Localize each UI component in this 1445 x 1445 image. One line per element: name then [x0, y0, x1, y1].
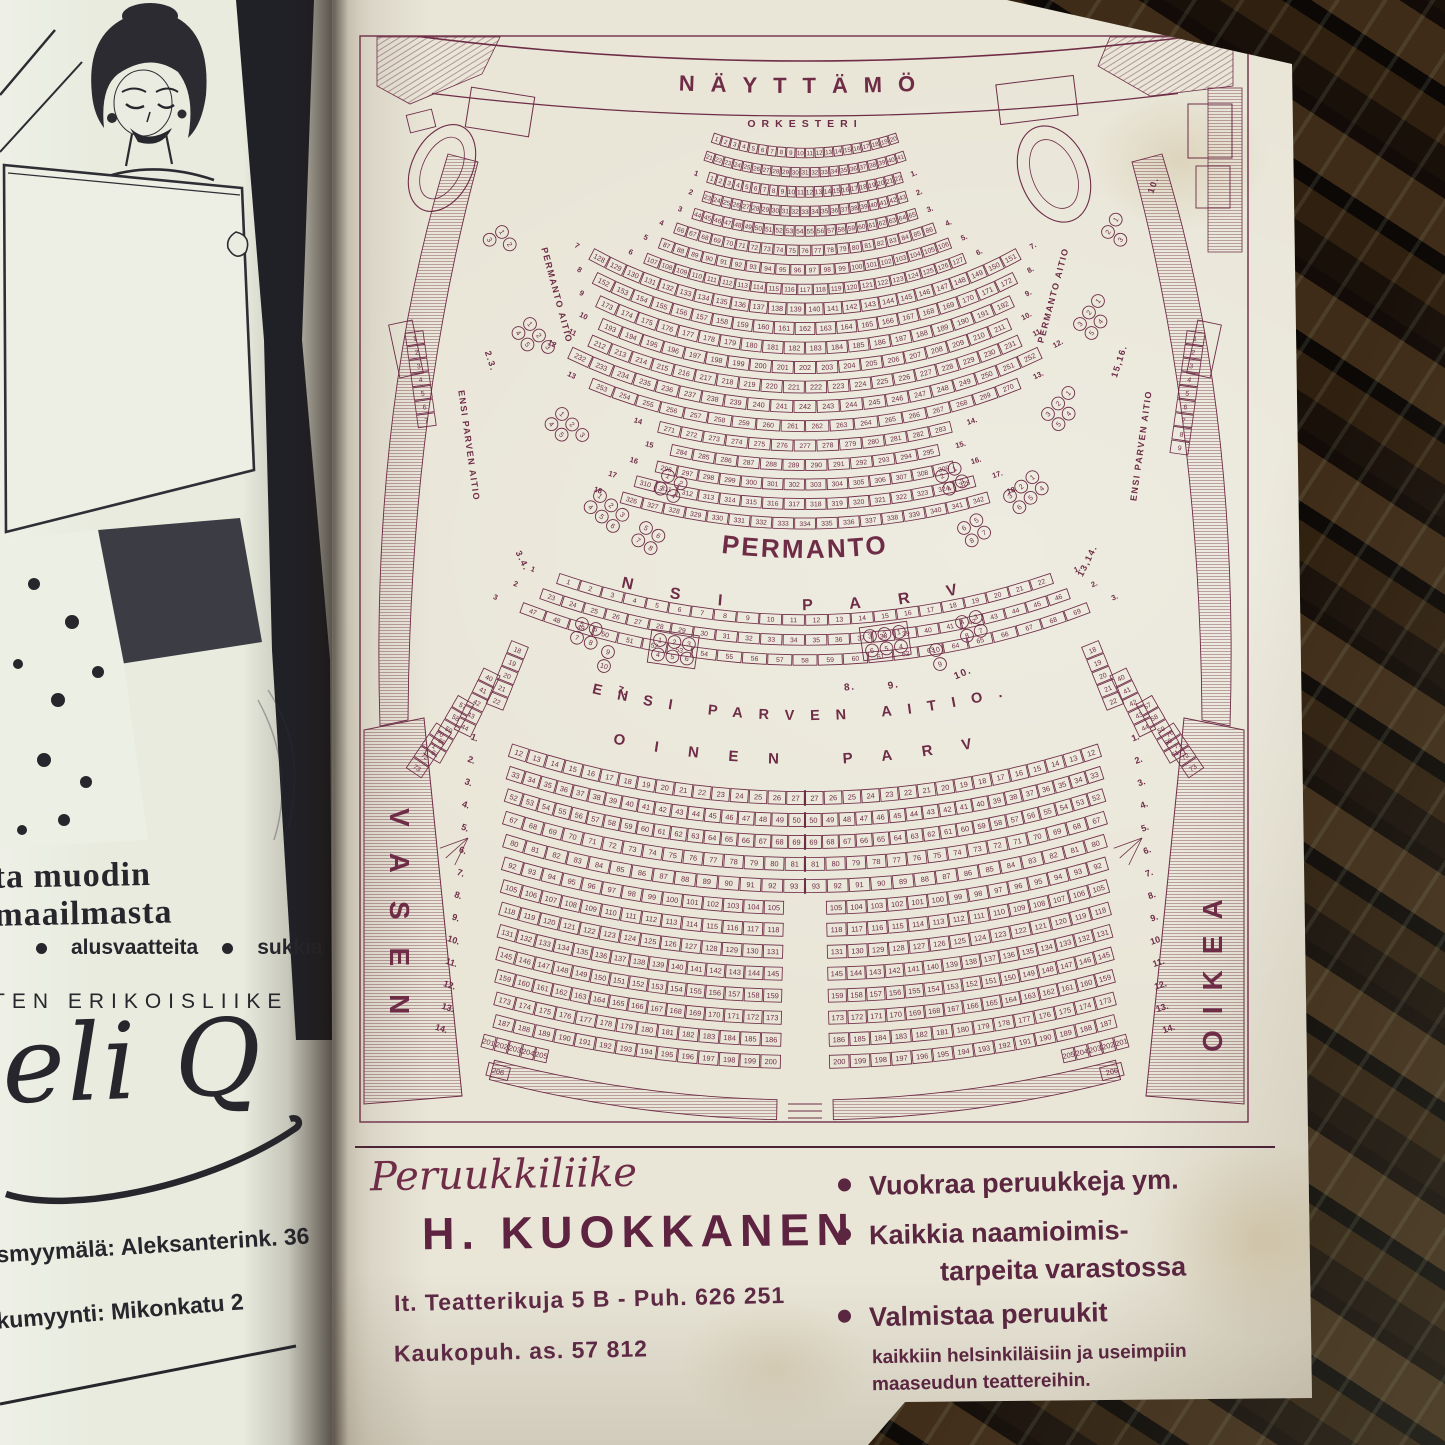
svg-text:19: 19 [971, 597, 980, 606]
svg-text:120: 120 [1054, 916, 1068, 928]
svg-text:119: 119 [831, 285, 842, 293]
svg-text:26: 26 [773, 793, 781, 802]
svg-text:2: 2 [587, 586, 593, 594]
svg-text:8: 8 [1179, 431, 1184, 438]
svg-text:112: 112 [645, 914, 658, 925]
svg-text:7: 7 [634, 537, 641, 545]
svg-text:15: 15 [1032, 763, 1042, 774]
svg-text:273: 273 [708, 435, 721, 444]
svg-text:84: 84 [901, 234, 910, 243]
svg-text:1.: 1. [909, 168, 918, 179]
svg-text:196: 196 [681, 1051, 694, 1061]
svg-text:3: 3 [732, 141, 738, 149]
svg-text:65: 65 [877, 834, 886, 844]
svg-text:68: 68 [826, 837, 834, 846]
svg-text:113: 113 [932, 917, 945, 927]
svg-text:30: 30 [700, 630, 709, 638]
svg-text:5.: 5. [460, 822, 470, 834]
bullet-item: sukkia [257, 936, 322, 960]
svg-text:39: 39 [992, 795, 1002, 805]
svg-text:1: 1 [1029, 474, 1037, 482]
svg-text:4: 4 [1039, 485, 1047, 493]
svg-text:185: 185 [744, 1034, 757, 1044]
svg-text:189: 189 [537, 1028, 551, 1039]
svg-text:2: 2 [718, 178, 724, 186]
svg-text:10: 10 [578, 310, 589, 322]
svg-text:12: 12 [806, 189, 814, 196]
svg-text:1: 1 [693, 168, 700, 178]
svg-text:2: 2 [1018, 483, 1026, 491]
svg-text:188: 188 [517, 1023, 531, 1035]
svg-text:7.: 7. [1028, 240, 1038, 251]
svg-text:60: 60 [858, 223, 867, 231]
svg-text:95: 95 [1033, 876, 1043, 887]
svg-text:178: 178 [997, 1018, 1011, 1029]
svg-text:44: 44 [460, 724, 470, 734]
svg-text:191: 191 [578, 1036, 592, 1047]
svg-text:6: 6 [609, 523, 617, 531]
svg-text:182: 182 [915, 1029, 928, 1039]
svg-text:145: 145 [1097, 950, 1111, 962]
svg-text:2: 2 [1105, 229, 1113, 236]
svg-text:2.: 2. [466, 754, 477, 766]
svg-text:110: 110 [993, 907, 1006, 918]
svg-text:43: 43 [675, 807, 684, 817]
svg-text:5: 5 [744, 184, 749, 192]
svg-text:41: 41 [641, 802, 651, 812]
svg-text:78: 78 [872, 857, 881, 867]
svg-text:258: 258 [713, 416, 725, 425]
svg-text:122: 122 [583, 925, 597, 936]
svg-text:84: 84 [594, 860, 604, 870]
svg-text:8: 8 [779, 149, 784, 156]
svg-text:92: 92 [768, 881, 777, 890]
svg-text:7: 7 [574, 635, 580, 643]
svg-text:187: 187 [497, 1018, 511, 1030]
svg-text:126: 126 [664, 939, 677, 949]
svg-text:PERMANTO AITIO: PERMANTO AITIO [1036, 246, 1071, 344]
svg-text:323: 323 [917, 489, 930, 498]
svg-text:14: 14 [633, 415, 644, 426]
svg-text:64: 64 [708, 833, 717, 843]
svg-text:67: 67 [758, 837, 767, 846]
svg-text:98: 98 [627, 889, 637, 899]
svg-text:4: 4 [514, 330, 522, 337]
svg-text:152: 152 [632, 978, 646, 989]
svg-text:290: 290 [811, 462, 823, 469]
svg-text:40: 40 [870, 201, 879, 209]
svg-text:158: 158 [715, 316, 728, 327]
svg-text:131: 131 [1095, 927, 1109, 939]
svg-text:6: 6 [654, 532, 661, 540]
svg-text:165: 165 [612, 998, 626, 1009]
svg-text:144: 144 [881, 296, 894, 307]
svg-text:5: 5 [973, 517, 980, 525]
svg-text:183: 183 [894, 1031, 907, 1041]
svg-text:82: 82 [1048, 850, 1058, 861]
svg-text:238: 238 [706, 393, 719, 404]
svg-text:33: 33 [801, 209, 809, 216]
svg-text:104: 104 [747, 902, 760, 912]
svg-text:166: 166 [631, 1001, 645, 1012]
svg-text:8: 8 [771, 188, 776, 195]
svg-text:98: 98 [973, 889, 983, 899]
svg-text:41: 41 [478, 686, 488, 696]
svg-text:1.: 1. [1130, 732, 1141, 744]
svg-text:54: 54 [700, 651, 709, 659]
svg-text:12: 12 [813, 617, 821, 624]
svg-text:44: 44 [1141, 724, 1151, 734]
svg-text:14.: 14. [966, 415, 979, 427]
svg-text:118: 118 [767, 925, 779, 934]
svg-text:335: 335 [821, 520, 833, 527]
svg-text:11: 11 [790, 617, 797, 624]
svg-text:68: 68 [700, 234, 709, 243]
svg-text:200: 200 [754, 361, 767, 371]
svg-text:5: 5 [1027, 494, 1035, 502]
svg-text:73: 73 [763, 246, 771, 254]
svg-text:103: 103 [727, 901, 740, 911]
svg-text:79: 79 [839, 246, 847, 254]
svg-text:156: 156 [708, 988, 721, 998]
svg-text:19: 19 [1093, 659, 1103, 668]
svg-text:78: 78 [826, 247, 834, 254]
svg-text:2.3.: 2.3. [483, 350, 499, 373]
svg-text:142: 142 [845, 302, 858, 312]
svg-text:116: 116 [871, 923, 883, 933]
svg-text:164: 164 [592, 994, 606, 1005]
svg-text:24: 24 [735, 791, 744, 801]
svg-text:49: 49 [826, 815, 834, 824]
svg-text:187: 187 [894, 333, 908, 344]
svg-text:84: 84 [1006, 860, 1016, 870]
svg-text:52: 52 [775, 227, 783, 235]
svg-text:40: 40 [924, 627, 933, 635]
svg-text:223: 223 [832, 381, 845, 391]
svg-text:4.: 4. [1139, 799, 1149, 811]
svg-text:37: 37 [575, 788, 585, 799]
svg-text:2: 2 [723, 139, 729, 147]
svg-text:3: 3 [686, 641, 691, 648]
svg-text:123: 123 [993, 929, 1007, 940]
svg-text:140: 140 [926, 962, 939, 972]
svg-text:7: 7 [762, 187, 767, 194]
svg-text:161: 161 [536, 982, 550, 994]
svg-text:83: 83 [573, 855, 583, 866]
svg-text:338: 338 [887, 514, 899, 522]
svg-text:215: 215 [656, 361, 670, 373]
svg-text:4.: 4. [461, 799, 471, 811]
svg-text:6: 6 [684, 656, 689, 663]
svg-text:15: 15 [881, 613, 889, 621]
svg-text:21: 21 [922, 785, 931, 795]
svg-text:65: 65 [976, 637, 985, 646]
svg-text:20: 20 [993, 591, 1002, 600]
bullet-dot-icon [838, 1178, 851, 1191]
svg-text:171: 171 [727, 1011, 740, 1021]
svg-text:VASEN: VASEN [384, 808, 415, 1042]
svg-text:8.: 8. [1025, 264, 1035, 275]
left-page: ta muodin maailmasta alusvaatteita sukki… [0, 0, 336, 1445]
svg-text:3.: 3. [1110, 592, 1119, 603]
svg-text:30: 30 [771, 207, 779, 215]
svg-text:26: 26 [753, 165, 761, 173]
svg-text:121: 121 [861, 281, 873, 290]
svg-text:142: 142 [888, 966, 901, 976]
ad-address-1: It. Teatterikuja 5 B - Puh. 626 251 [394, 1282, 786, 1317]
svg-text:216: 216 [677, 367, 691, 379]
svg-text:32: 32 [811, 169, 819, 176]
svg-text:4: 4 [959, 619, 965, 627]
svg-text:196: 196 [916, 1051, 929, 1061]
ad-bullet-2: Kaikkia naamioimis- [838, 1215, 1129, 1252]
svg-text:330: 330 [711, 514, 723, 522]
svg-text:135: 135 [1021, 946, 1035, 957]
svg-text:192: 192 [998, 1040, 1012, 1051]
svg-text:40: 40 [976, 799, 986, 809]
svg-text:46: 46 [876, 812, 885, 822]
svg-text:34: 34 [830, 168, 838, 176]
svg-text:39: 39 [860, 203, 869, 211]
svg-text:70: 70 [567, 831, 577, 842]
svg-text:13,14.: 13,14. [1075, 543, 1099, 578]
svg-text:61: 61 [657, 827, 666, 837]
svg-text:189: 189 [935, 322, 949, 334]
svg-text:122: 122 [1014, 925, 1028, 936]
svg-text:52: 52 [508, 792, 519, 803]
svg-text:15: 15 [644, 439, 654, 450]
svg-text:222: 222 [810, 382, 822, 391]
svg-text:83: 83 [889, 237, 898, 246]
svg-text:143: 143 [728, 967, 741, 977]
svg-text:31: 31 [802, 170, 809, 177]
svg-text:91: 91 [746, 880, 755, 889]
svg-text:199: 199 [732, 358, 745, 369]
svg-text:284: 284 [675, 448, 688, 457]
svg-text:197: 197 [688, 350, 702, 361]
svg-text:179: 179 [977, 1021, 991, 1032]
svg-text:114: 114 [752, 284, 764, 292]
svg-text:1: 1 [709, 175, 715, 183]
svg-text:259: 259 [738, 419, 750, 427]
svg-text:192: 192 [599, 1040, 613, 1051]
svg-text:319: 319 [831, 500, 843, 508]
svg-text:68: 68 [775, 837, 783, 846]
svg-text:2: 2 [1086, 309, 1094, 316]
svg-text:201: 201 [481, 1036, 495, 1048]
svg-text:43: 43 [926, 807, 935, 817]
svg-text:69: 69 [792, 838, 800, 847]
svg-text:313: 313 [702, 493, 714, 502]
svg-text:270: 270 [1002, 383, 1015, 394]
dress-bodice [98, 518, 262, 664]
svg-text:156: 156 [889, 988, 902, 998]
svg-text:4.: 4. [944, 217, 953, 228]
svg-text:160: 160 [517, 977, 531, 989]
svg-text:157: 157 [869, 989, 882, 999]
bullet-dot-icon [36, 943, 47, 954]
svg-text:4: 4 [741, 143, 746, 151]
svg-text:41: 41 [1122, 686, 1132, 696]
svg-text:65: 65 [725, 834, 734, 844]
svg-text:28: 28 [772, 168, 780, 176]
svg-text:203: 203 [1088, 1043, 1102, 1055]
svg-text:7.: 7. [456, 867, 466, 879]
svg-text:27: 27 [810, 794, 818, 803]
svg-text:141: 141 [827, 303, 840, 313]
svg-text:74: 74 [648, 847, 658, 857]
svg-text:1: 1 [1112, 217, 1120, 224]
svg-text:92: 92 [734, 261, 743, 269]
svg-text:90: 90 [877, 879, 886, 889]
svg-text:205: 205 [1062, 1050, 1076, 1061]
svg-text:105: 105 [504, 883, 518, 895]
svg-text:3.: 3. [1136, 776, 1147, 788]
svg-text:63: 63 [910, 831, 919, 841]
svg-text:16: 16 [841, 186, 849, 194]
svg-text:134: 134 [697, 292, 711, 304]
svg-text:29: 29 [761, 206, 769, 214]
svg-text:58: 58 [607, 818, 617, 828]
svg-text:139: 139 [945, 959, 958, 970]
svg-text:127: 127 [912, 941, 925, 951]
svg-text:188: 188 [1079, 1023, 1093, 1035]
svg-text:167: 167 [650, 1003, 663, 1014]
svg-text:173: 173 [831, 1013, 844, 1022]
svg-text:71: 71 [587, 836, 597, 847]
svg-text:169: 169 [689, 1008, 702, 1018]
ad-divider-rule [355, 1146, 1275, 1148]
svg-text:135: 135 [715, 296, 728, 307]
svg-text:89: 89 [702, 877, 711, 887]
svg-text:243: 243 [822, 401, 834, 411]
svg-text:91: 91 [855, 880, 864, 889]
svg-text:120: 120 [542, 916, 556, 928]
svg-text:36: 36 [835, 637, 843, 644]
svg-text:5: 5 [597, 513, 605, 521]
svg-text:3.4.: 3.4. [514, 549, 532, 572]
svg-text:186: 186 [833, 1035, 846, 1044]
svg-text:3: 3 [1117, 237, 1125, 244]
svg-text:133: 133 [538, 937, 552, 949]
svg-text:138: 138 [632, 956, 646, 967]
svg-text:56: 56 [751, 656, 759, 663]
svg-text:189: 189 [1059, 1028, 1073, 1039]
svg-text:333: 333 [777, 520, 789, 527]
svg-text:92: 92 [507, 861, 517, 872]
svg-text:138: 138 [964, 956, 978, 967]
svg-text:275: 275 [754, 441, 766, 449]
svg-text:10: 10 [797, 150, 805, 157]
svg-text:51: 51 [765, 226, 773, 234]
svg-text:247: 247 [913, 389, 927, 400]
svg-text:9.: 9. [887, 679, 900, 692]
svg-text:64: 64 [951, 642, 960, 650]
svg-text:35: 35 [812, 637, 820, 644]
svg-text:117: 117 [747, 924, 759, 934]
svg-text:163: 163 [1023, 990, 1037, 1001]
svg-text:118: 118 [1093, 905, 1107, 917]
svg-text:320: 320 [853, 499, 865, 507]
svg-text:14: 14 [550, 758, 560, 769]
svg-text:100: 100 [931, 894, 944, 904]
svg-text:54: 54 [796, 228, 804, 235]
svg-text:139: 139 [651, 959, 664, 970]
svg-text:53: 53 [525, 797, 535, 808]
svg-text:50: 50 [754, 225, 763, 233]
svg-text:4: 4 [586, 504, 594, 512]
svg-text:48: 48 [759, 815, 768, 824]
svg-text:81: 81 [530, 844, 540, 855]
svg-text:260: 260 [762, 422, 774, 430]
svg-text:288: 288 [765, 461, 777, 469]
svg-text:81: 81 [864, 242, 873, 250]
svg-text:95: 95 [567, 876, 577, 887]
ad-address-2: Kaukopuh. as. 57 812 [394, 1335, 648, 1367]
svg-text:9.: 9. [451, 912, 461, 924]
svg-text:66: 66 [860, 836, 869, 845]
ad-bullet-3: Valmistaa peruukit [838, 1297, 1108, 1334]
svg-text:NÄYTTÄMÖ: NÄYTTÄMÖ [679, 70, 932, 98]
svg-text:79: 79 [750, 858, 759, 867]
svg-text:17.: 17. [991, 468, 1004, 480]
svg-text:35: 35 [543, 779, 553, 790]
svg-text:314: 314 [724, 496, 736, 504]
svg-text:28: 28 [752, 205, 761, 213]
svg-text:185: 185 [852, 340, 865, 350]
svg-text:93: 93 [790, 882, 798, 891]
svg-text:164: 164 [840, 322, 853, 332]
svg-text:9.: 9. [1149, 912, 1159, 924]
svg-text:9.: 9. [1023, 288, 1033, 299]
svg-text:25: 25 [848, 792, 857, 801]
svg-text:55: 55 [1042, 806, 1052, 817]
svg-text:162: 162 [554, 986, 568, 997]
svg-text:137: 137 [752, 302, 765, 312]
svg-text:97: 97 [607, 885, 617, 895]
svg-text:5: 5 [1055, 421, 1063, 429]
svg-text:31: 31 [781, 208, 789, 215]
svg-text:264: 264 [860, 419, 872, 427]
svg-text:322: 322 [895, 493, 907, 502]
svg-text:8: 8 [647, 545, 654, 553]
svg-text:97: 97 [809, 267, 817, 274]
svg-text:19: 19 [507, 659, 517, 668]
svg-text:136: 136 [1002, 950, 1016, 961]
svg-text:80: 80 [509, 838, 519, 849]
svg-text:191: 191 [1018, 1036, 1032, 1047]
svg-text:34: 34 [526, 775, 536, 786]
svg-text:17: 17 [607, 469, 618, 480]
svg-text:23: 23 [885, 790, 894, 800]
svg-text:101: 101 [686, 897, 699, 907]
svg-text:276: 276 [776, 442, 788, 449]
svg-text:96: 96 [794, 267, 802, 274]
svg-text:155: 155 [908, 986, 921, 996]
svg-text:170: 170 [708, 1010, 721, 1020]
svg-text:193: 193 [619, 1043, 633, 1054]
svg-text:1: 1 [1095, 298, 1103, 305]
svg-text:181: 181 [936, 1027, 949, 1037]
svg-text:94: 94 [1053, 872, 1063, 883]
svg-text:17: 17 [604, 772, 614, 783]
svg-text:4: 4 [632, 598, 637, 606]
svg-text:147: 147 [1059, 960, 1073, 972]
svg-text:303: 303 [810, 482, 822, 489]
svg-text:15: 15 [832, 188, 840, 196]
svg-text:153: 153 [946, 981, 959, 992]
svg-text:40: 40 [1116, 674, 1126, 684]
